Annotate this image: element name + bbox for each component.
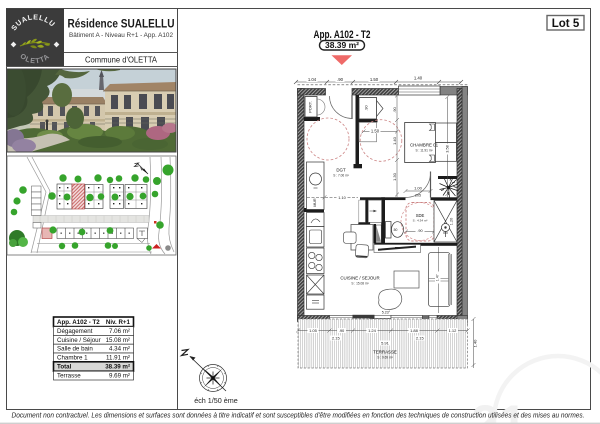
svg-text:S : 11.91 m²: S : 11.91 m² <box>415 149 432 153</box>
svg-text:5.23°: 5.23° <box>382 311 391 315</box>
svg-text:9.69 m²: 9.69 m² <box>109 373 130 380</box>
svg-text:.90: .90 <box>339 328 345 333</box>
svg-text:SDE: SDE <box>416 213 425 218</box>
svg-text:205: 205 <box>415 194 421 198</box>
svg-text:1.30: 1.30 <box>392 172 397 181</box>
svg-text:CUISINE / SEJOUR: CUISINE / SEJOUR <box>340 276 379 281</box>
svg-text:Terrasse: Terrasse <box>57 373 81 380</box>
svg-text:1.50: 1.50 <box>371 128 380 133</box>
svg-text:Salle de bain: Salle de bain <box>57 346 93 353</box>
svg-text:MUR: MUR <box>313 198 317 207</box>
svg-text:Cuisine / Séjour: Cuisine / Séjour <box>57 337 101 344</box>
svg-text:S : 7.06 m²: S : 7.06 m² <box>333 173 349 177</box>
svg-text:Niv. R+1: Niv. R+1 <box>106 319 131 326</box>
svg-text:Résidence SUALELLU: Résidence SUALELLU <box>68 19 175 31</box>
svg-text:1.12: 1.12 <box>449 328 458 333</box>
svg-text:1.04: 1.04 <box>308 77 317 82</box>
svg-text:1.88: 1.88 <box>410 328 419 333</box>
svg-text:App. A102 - T2: App. A102 - T2 <box>314 29 371 41</box>
svg-text:2.15: 2.15 <box>332 336 341 341</box>
svg-text:éch 1/50 ème: éch 1/50 ème <box>194 396 238 405</box>
svg-text:1.40: 1.40 <box>473 339 478 348</box>
svg-text:App. A102 - T2: App. A102 - T2 <box>57 319 100 326</box>
svg-text:Dégagement: Dégagement <box>57 328 93 335</box>
svg-text:1.00: 1.00 <box>414 186 423 191</box>
svg-text:Total: Total <box>57 364 72 371</box>
svg-text:Commune d'OLETTA: Commune d'OLETTA <box>85 55 157 65</box>
svg-text:S : 15.08 m²: S : 15.08 m² <box>351 282 368 286</box>
svg-text:1.05: 1.05 <box>309 328 318 333</box>
svg-text:S : 9.69 m²: S : 9.69 m² <box>377 356 393 360</box>
svg-text:38.39 m²: 38.39 m² <box>105 364 130 371</box>
svg-text:.90: .90 <box>337 77 344 82</box>
svg-text:2.15: 2.15 <box>416 336 425 341</box>
svg-text:7.06 m²: 7.06 m² <box>109 328 130 335</box>
svg-text:CHAMBRE 01: CHAMBRE 01 <box>410 143 439 148</box>
svg-text:.90: .90 <box>365 105 369 110</box>
svg-text:Lot 5: Lot 5 <box>552 18 580 30</box>
svg-text:TERRASSE: TERRASSE <box>373 350 397 355</box>
svg-text:S : 4.34 m²: S : 4.34 m² <box>413 219 428 223</box>
svg-text:.90: .90 <box>417 229 422 233</box>
svg-text:4.34 m²: 4.34 m² <box>109 346 130 353</box>
svg-text:Document non contractuel. Les: Document non contractuel. Les dimensions… <box>12 413 585 420</box>
svg-text:1.20: 1.20 <box>450 218 454 225</box>
svg-text:1.40: 1.40 <box>392 136 397 145</box>
svg-text:.90: .90 <box>392 106 397 112</box>
svg-text:1.50: 1.50 <box>370 77 379 82</box>
svg-text:.50: .50 <box>393 228 398 232</box>
svg-text:1.24: 1.24 <box>368 328 377 333</box>
svg-text:15.08 m²: 15.08 m² <box>106 337 130 344</box>
svg-text:1.47: 1.47 <box>436 274 440 281</box>
svg-text:38.39 m²: 38.39 m² <box>325 41 359 50</box>
svg-text:5.91: 5.91 <box>381 341 390 346</box>
svg-text:11.91 m²: 11.91 m² <box>106 354 130 361</box>
svg-text:Bâtiment A - Niveau R+1 - App.: Bâtiment A - Niveau R+1 - App. A102 <box>69 32 173 39</box>
svg-text:PORT.: PORT. <box>308 101 313 113</box>
svg-text:1.10: 1.10 <box>338 196 345 200</box>
svg-text:1.40: 1.40 <box>414 76 423 81</box>
svg-text:Chambre 1: Chambre 1 <box>57 354 88 361</box>
svg-text:DGT: DGT <box>336 168 346 173</box>
svg-text:21: 21 <box>471 395 527 424</box>
svg-text:3.58: 3.58 <box>446 145 450 152</box>
